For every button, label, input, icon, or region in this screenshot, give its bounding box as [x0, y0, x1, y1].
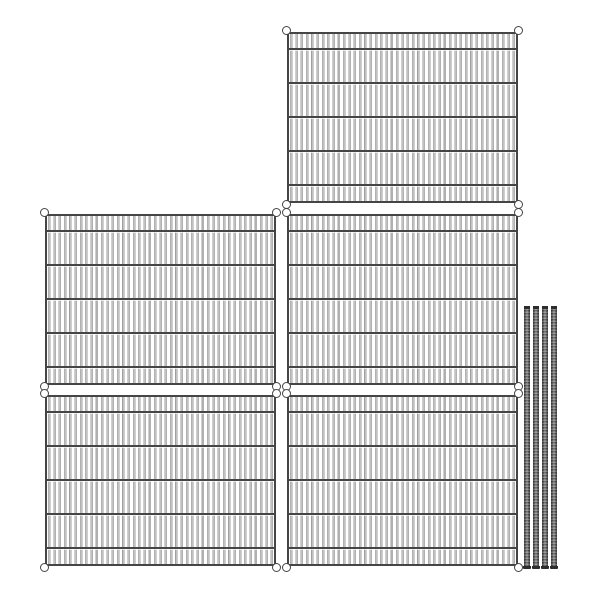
shelf-crossbar [47, 445, 274, 447]
shelf-crossbar [47, 298, 274, 300]
wire-shelf [45, 395, 276, 566]
shelf-crossbar [289, 116, 516, 118]
wire-shelf [45, 214, 276, 385]
corner-ring [282, 208, 291, 217]
post-foot [541, 566, 549, 569]
corner-ring [272, 208, 281, 217]
wire-shelf [287, 214, 518, 385]
shelf-crossbar [289, 48, 516, 50]
post-cap [533, 306, 539, 309]
shelf-crossbar [289, 150, 516, 152]
shelf-crossbar [289, 513, 516, 515]
corner-ring [282, 389, 291, 398]
post-foot [523, 566, 531, 569]
shelf-crossbar [47, 411, 274, 413]
shelving-post [533, 306, 539, 569]
corner-ring [514, 208, 523, 217]
shelf-crossbar [47, 479, 274, 481]
post-cap [524, 306, 530, 309]
product-image [0, 0, 600, 600]
shelf-crossbar [47, 264, 274, 266]
shelf-crossbar [289, 411, 516, 413]
shelf-crossbar [289, 264, 516, 266]
post-cap [542, 306, 548, 309]
corner-ring [40, 389, 49, 398]
shelf-crossbar [289, 82, 516, 84]
corner-ring [282, 26, 291, 35]
shelf-crossbar [289, 366, 516, 368]
shelf-crossbar [47, 332, 274, 334]
shelf-crossbar [289, 445, 516, 447]
shelf-crossbar [47, 513, 274, 515]
corner-ring [272, 389, 281, 398]
wire-shelf [287, 395, 518, 566]
corner-ring [514, 563, 523, 572]
shelf-crossbar [47, 547, 274, 549]
shelf-crossbar [289, 547, 516, 549]
shelf-crossbar [289, 184, 516, 186]
corner-ring [282, 563, 291, 572]
shelf-crossbar [289, 298, 516, 300]
shelf-crossbar [47, 230, 274, 232]
shelf-crossbar [289, 479, 516, 481]
shelf-crossbar [289, 332, 516, 334]
corner-ring [40, 208, 49, 217]
post-foot [550, 566, 558, 569]
wire-shelf [287, 32, 518, 203]
corner-ring [514, 389, 523, 398]
corner-ring [272, 563, 281, 572]
corner-ring [40, 563, 49, 572]
shelving-post [551, 306, 557, 569]
post-foot [532, 566, 540, 569]
corner-ring [514, 26, 523, 35]
shelving-post [542, 306, 548, 569]
shelf-crossbar [47, 366, 274, 368]
shelf-crossbar [289, 230, 516, 232]
shelving-post [524, 306, 530, 569]
post-cap [551, 306, 557, 309]
